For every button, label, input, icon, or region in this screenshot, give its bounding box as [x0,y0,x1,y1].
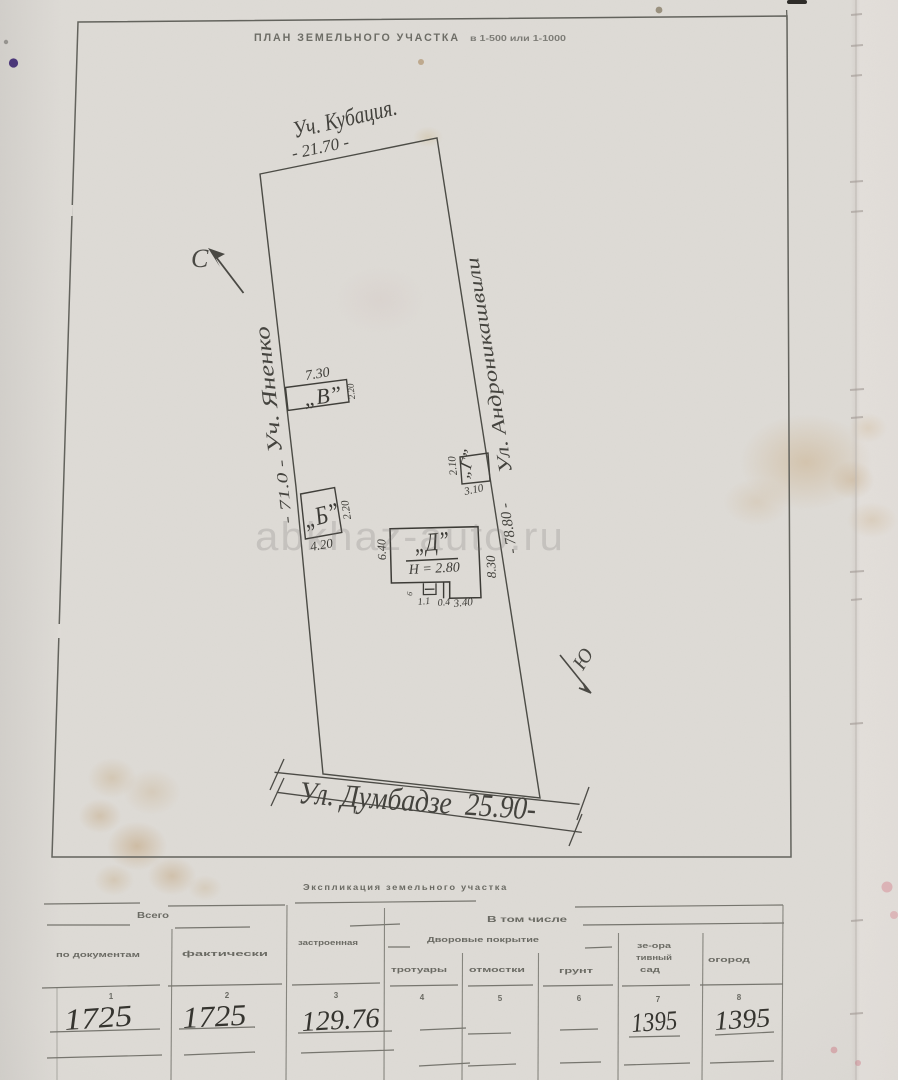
svg-text:7: 7 [656,995,661,1004]
svg-text:Н = 2.80: Н = 2.80 [407,560,460,578]
svg-text:Экспликация земельного участка: Экспликация земельного участка [303,882,508,892]
svg-text:1.1: 1.1 [417,596,431,608]
svg-text:Дворовые покрытие: Дворовые покрытие [427,935,539,944]
svg-text:застроенная: застроенная [298,938,358,947]
svg-text:С: С [191,244,209,273]
svg-text:0.4: 0.4 [437,597,451,609]
svg-text:В том числе: В том числе [487,914,567,924]
svg-text:4: 4 [420,993,425,1002]
svg-text:6: 6 [405,591,414,596]
svg-text:1395: 1395 [713,1002,771,1036]
svg-text:1725: 1725 [182,999,248,1035]
svg-text:огород: огород [708,955,750,964]
svg-text:6: 6 [577,994,582,1003]
svg-text:зе-ора: зе-ора [637,941,672,950]
svg-text:8: 8 [737,993,742,1002]
svg-text:грунт: грунт [559,966,594,975]
svg-text:1395: 1395 [630,1005,678,1038]
svg-text:2.20: 2.20 [345,383,357,400]
svg-text:Всего: Всего [137,910,169,920]
svg-text:сад: сад [640,965,660,974]
svg-text:3.40: 3.40 [452,596,474,610]
svg-text:тротуары: тротуары [391,965,447,974]
svg-text:по документам: по документам [56,950,141,959]
svg-text:abkhaz-auto.ru: abkhaz-auto.ru [255,515,565,559]
svg-text:2.10: 2.10 [446,455,460,476]
svg-text:5: 5 [498,994,503,1003]
svg-text:отмостки: отмостки [469,965,526,974]
svg-text:„В”: „В” [302,381,343,411]
svg-text:фактически: фактически [182,949,269,958]
svg-text:ПЛАН ЗЕМЕЛЬНОГО УЧАСТКА: ПЛАН ЗЕМЕЛЬНОГО УЧАСТКА [254,32,460,44]
svg-text:тивный: тивный [636,953,672,962]
svg-text:в 1-500 или 1-1000: в 1-500 или 1-1000 [470,33,566,43]
svg-text:3: 3 [334,991,339,1000]
